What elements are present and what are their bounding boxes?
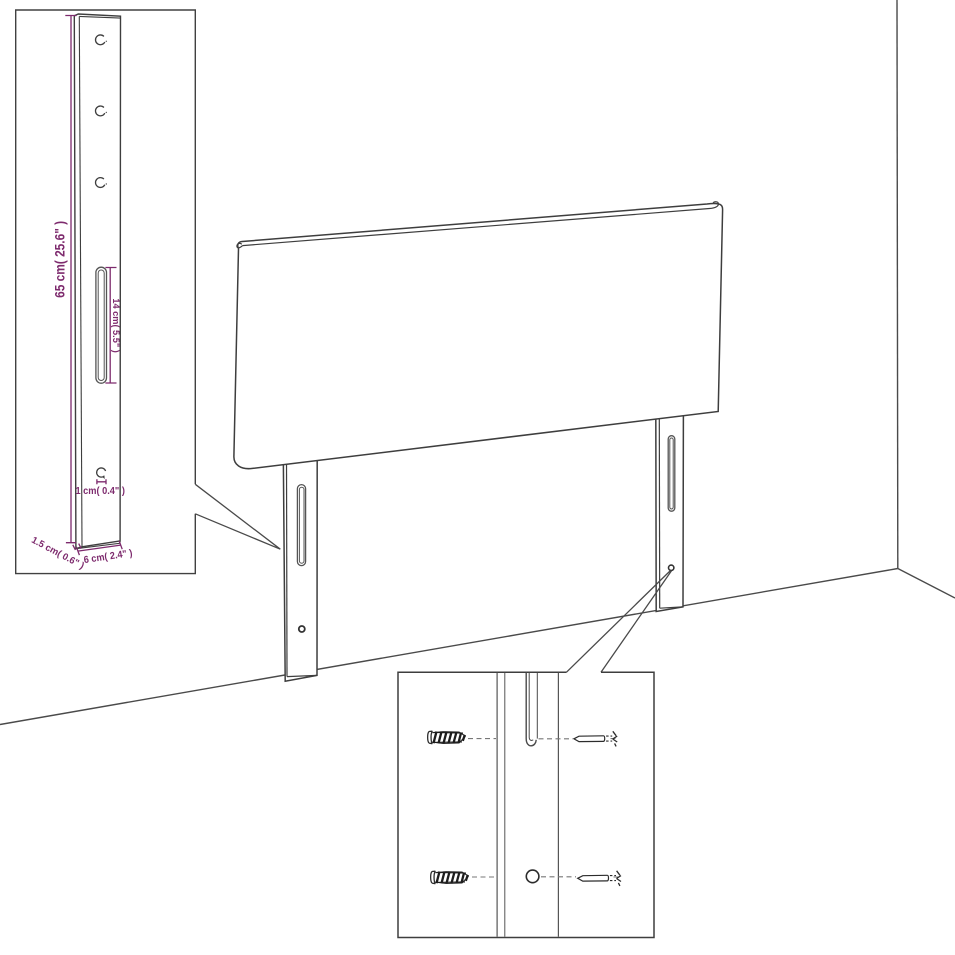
- svg-text:1 cm( 0.4" ): 1 cm( 0.4" ): [75, 486, 125, 497]
- svg-text:14 cm( 5.5" ): 14 cm( 5.5" ): [110, 298, 121, 353]
- svg-text:65 cm( 25.6" ): 65 cm( 25.6" ): [51, 221, 67, 298]
